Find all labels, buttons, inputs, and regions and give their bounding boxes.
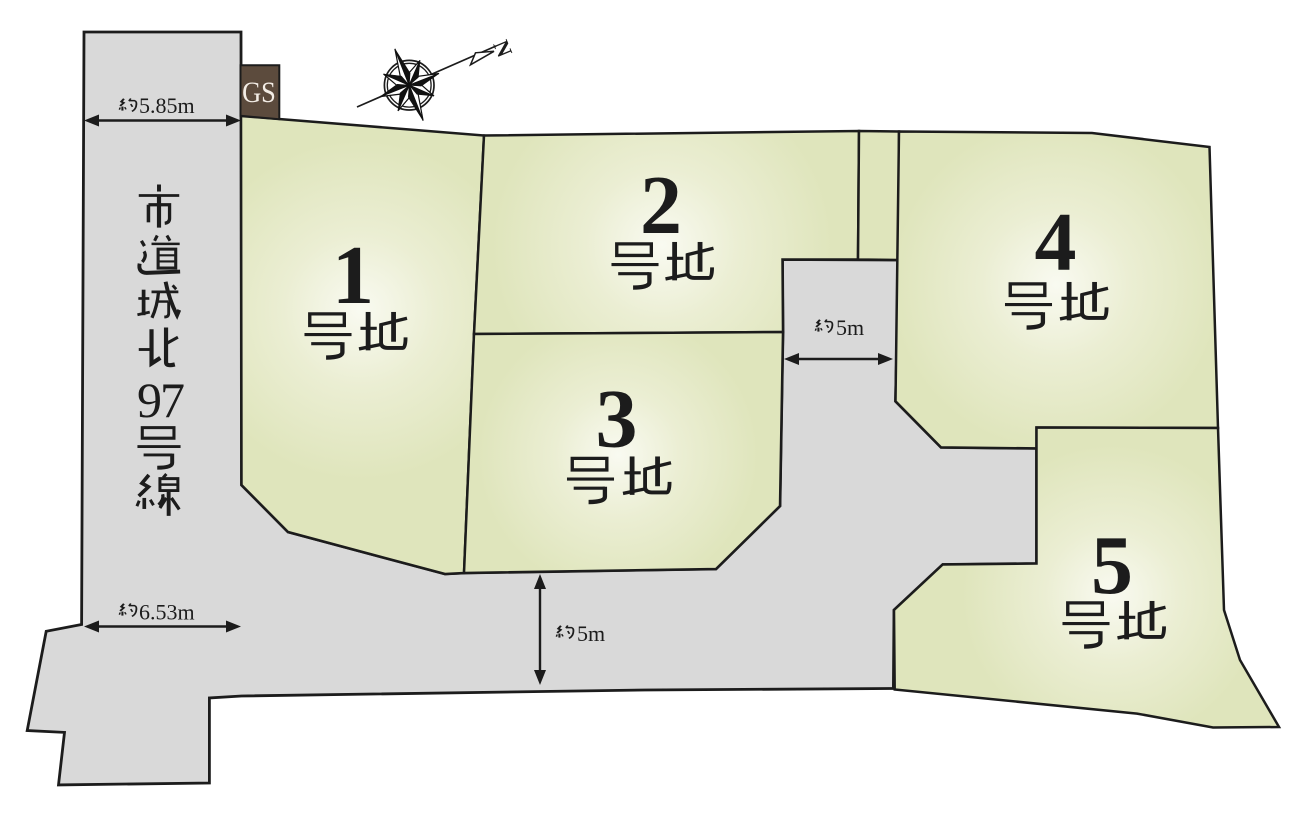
svg-text:3: 3 <box>596 373 638 466</box>
svg-text:2: 2 <box>640 159 682 252</box>
svg-text:5: 5 <box>1091 519 1133 612</box>
svg-text:4: 4 <box>1035 196 1077 289</box>
svg-text:97: 97 <box>137 372 184 428</box>
svg-text:N: N <box>488 36 517 60</box>
svg-text:1: 1 <box>332 229 374 322</box>
svg-text:5m: 5m <box>836 315 864 340</box>
svg-text:5m: 5m <box>577 621 605 646</box>
svg-text:5.85m: 5.85m <box>139 93 195 118</box>
svg-text:6.53m: 6.53m <box>139 600 195 625</box>
svg-text:GS: GS <box>242 77 276 110</box>
